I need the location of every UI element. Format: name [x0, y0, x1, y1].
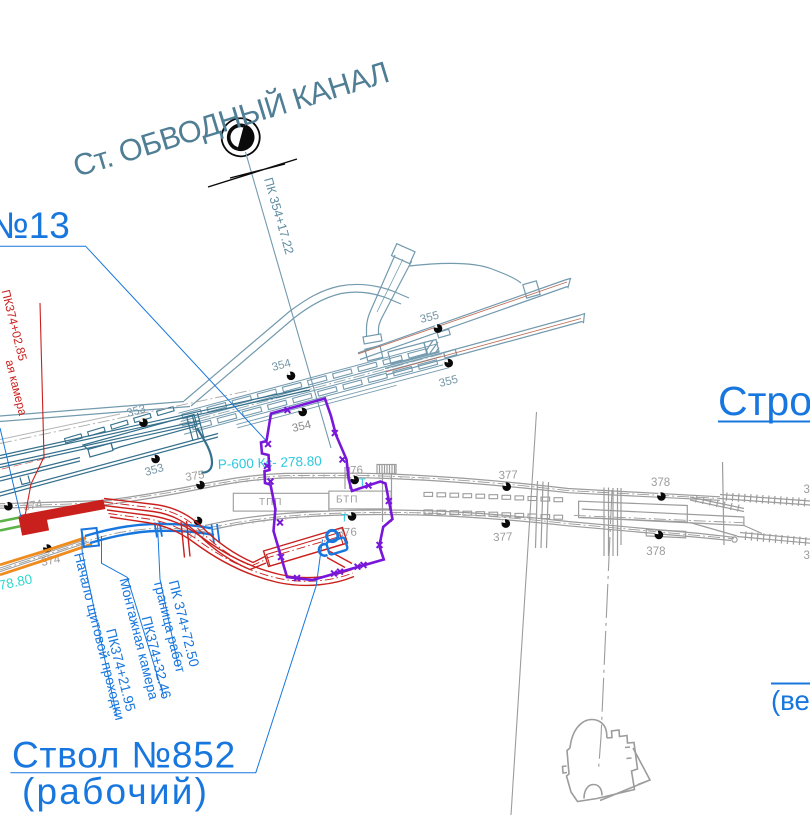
svg-text:Т: Т	[341, 513, 348, 525]
svg-text:379: 379	[804, 484, 810, 496]
svg-text:(вентиляционный): (вентиляционный)	[771, 685, 810, 716]
svg-text:378: 378	[646, 546, 665, 558]
svg-text:№13: №13	[0, 205, 70, 246]
svg-text:Ствол №852: Ствол №852	[12, 735, 236, 776]
svg-text:БТП: БТП	[336, 495, 358, 506]
svg-text:378: 378	[651, 477, 670, 489]
svg-text:ТПП: ТПП	[259, 497, 282, 508]
svg-text:Строящийся: Строящийся	[718, 378, 810, 424]
svg-text:379: 379	[804, 550, 810, 562]
svg-text:377: 377	[493, 531, 513, 544]
svg-text:377: 377	[498, 469, 518, 482]
svg-text:(рабочий): (рабочий)	[22, 771, 209, 812]
